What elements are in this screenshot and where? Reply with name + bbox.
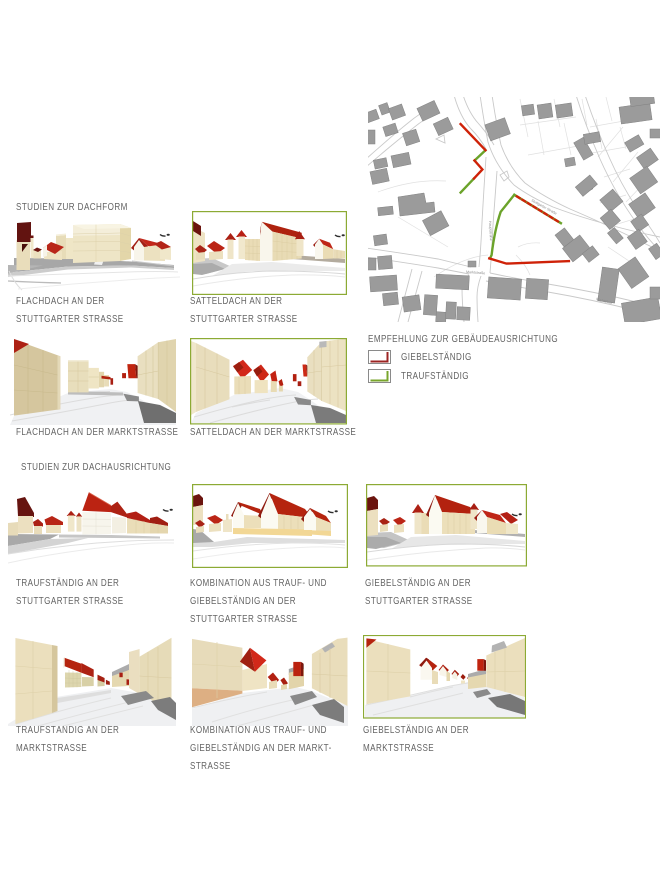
svg-text:Hauptstraße: Hauptstraße <box>488 221 493 241</box>
svg-text:Marktstraße: Marktstraße <box>466 270 485 275</box>
